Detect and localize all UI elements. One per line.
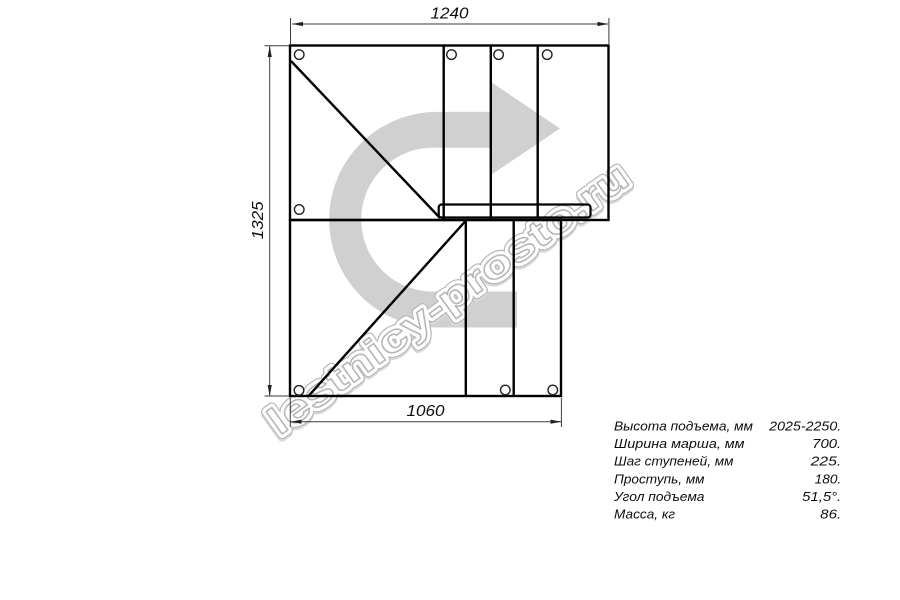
svg-text:Проступь, мм: Проступь, мм <box>614 471 705 486</box>
svg-text:Ширина марша, мм: Ширина марша, мм <box>614 436 745 451</box>
svg-text:Шаг ступеней, мм: Шаг ступеней, мм <box>614 454 734 469</box>
svg-text:1060: 1060 <box>407 403 445 420</box>
svg-text:700.: 700. <box>812 436 841 451</box>
svg-text:Высота подъема, мм: Высота подъема, мм <box>614 418 753 433</box>
svg-text:1325: 1325 <box>250 201 267 239</box>
svg-text:Масса, кг: Масса, кг <box>614 507 676 522</box>
svg-text:86.: 86. <box>820 507 841 522</box>
svg-text:1240: 1240 <box>431 5 469 22</box>
svg-text:51,5°.: 51,5°. <box>802 489 841 504</box>
svg-text:Угол подъема: Угол подъема <box>613 489 705 504</box>
svg-text:180.: 180. <box>815 471 842 486</box>
svg-text:2025-2250.: 2025-2250. <box>768 418 841 433</box>
svg-text:225.: 225. <box>809 454 841 469</box>
